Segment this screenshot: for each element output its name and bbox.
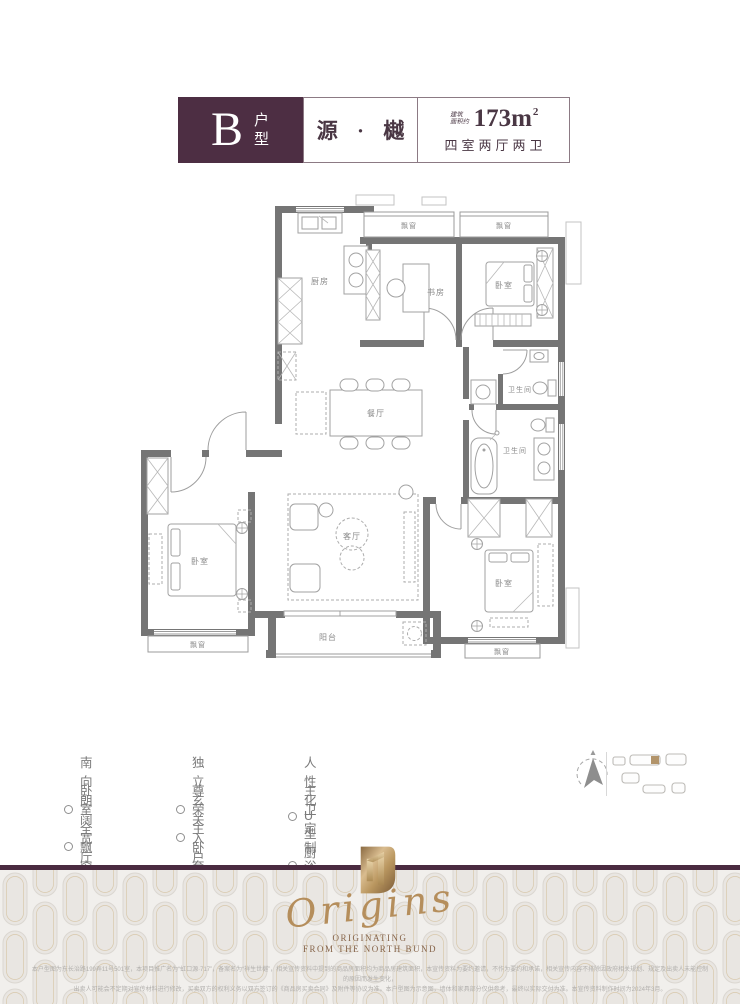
disclaimer-line2: 出卖人可能会不定期对宣传材料进行修改，买卖双方的权利义务以双方签订的《商品房买卖…: [30, 985, 710, 995]
bay-window-label: 飘窗: [496, 221, 512, 230]
floorplan-poster: B 户型 源 · 樾 建筑 面积约 173m 2 四室两厅两卫: [0, 0, 740, 1004]
layout-summary: 四室两厅两卫: [440, 135, 546, 154]
unit-type-label: 户型: [254, 111, 270, 149]
brand-tagline-line2: FROM THE NORTH BUND: [0, 944, 740, 954]
unit-info: 建筑 面积约 173m 2 四室两厅两卫: [418, 97, 570, 163]
kitchen-fixtures: [278, 213, 368, 380]
bay-window-label: 飘窗: [494, 647, 510, 656]
floorplan-drawing: 飘窗 飘窗 飘窗 飘窗: [138, 192, 608, 672]
project-name-text: 源 · 樾: [310, 115, 412, 145]
disclaimer-line1: 本户型图为东长治路199弄11号501室，本项目推广名为“虹口源·717”，备案…: [30, 965, 710, 985]
brand-script-wrap: Origins: [0, 884, 740, 928]
study-label: 书房: [427, 287, 445, 297]
bathroom-label: 卫生间: [508, 385, 532, 394]
living-furniture: [288, 485, 418, 600]
dining-label: 餐厅: [367, 409, 385, 418]
area-superscript: 2: [533, 106, 539, 118]
bedroom-label: 卧室: [191, 556, 209, 566]
site-plan-map: [610, 744, 696, 800]
dining-furniture: [296, 379, 422, 449]
area-prefix: 建筑 面积约: [450, 111, 469, 125]
bay-window-label: 飘窗: [190, 640, 206, 649]
bay-window-label: 飘窗: [401, 221, 417, 230]
disclaimer: 本户型图为东长治路199弄11号501室，本项目推广名为“虹口源·717”，备案…: [30, 965, 710, 995]
area-prefix-line1: 建筑: [450, 111, 469, 118]
bathroom-label: 卫生间: [503, 446, 527, 455]
bedroom3-furniture: [147, 458, 251, 612]
living-label: 客厅: [343, 531, 361, 541]
unit-location-marker: [651, 756, 659, 764]
area-prefix-line2: 面积约: [450, 119, 469, 126]
balcony-fixtures: [403, 622, 426, 645]
unit-header: B 户型 源 · 樾 建筑 面积约 173m 2 四室两厅两卫: [178, 97, 570, 163]
study-furniture: [366, 250, 429, 320]
bedroom2-furniture: [475, 248, 553, 326]
area-row: 建筑 面积约 173m 2: [449, 106, 539, 131]
bedroom-label: 卧室: [495, 280, 513, 290]
unit-letter: B: [211, 106, 243, 154]
project-name: 源 · 樾: [303, 97, 418, 163]
area-value: 173m: [474, 106, 532, 131]
kitchen-label: 厨房: [311, 276, 329, 286]
bullet-ring-icon: [176, 833, 185, 842]
brand-tagline-line1: ORIGINATING: [0, 933, 740, 943]
master-bedroom-furniture: [468, 499, 553, 632]
unit-badge: B 户型: [178, 97, 303, 163]
bullet-ring-icon: [64, 842, 73, 851]
divider: [606, 752, 607, 796]
balcony-label: 阳台: [319, 632, 337, 642]
brand-script: Origins: [283, 875, 457, 937]
bedroom-label: 卧室: [495, 578, 513, 588]
